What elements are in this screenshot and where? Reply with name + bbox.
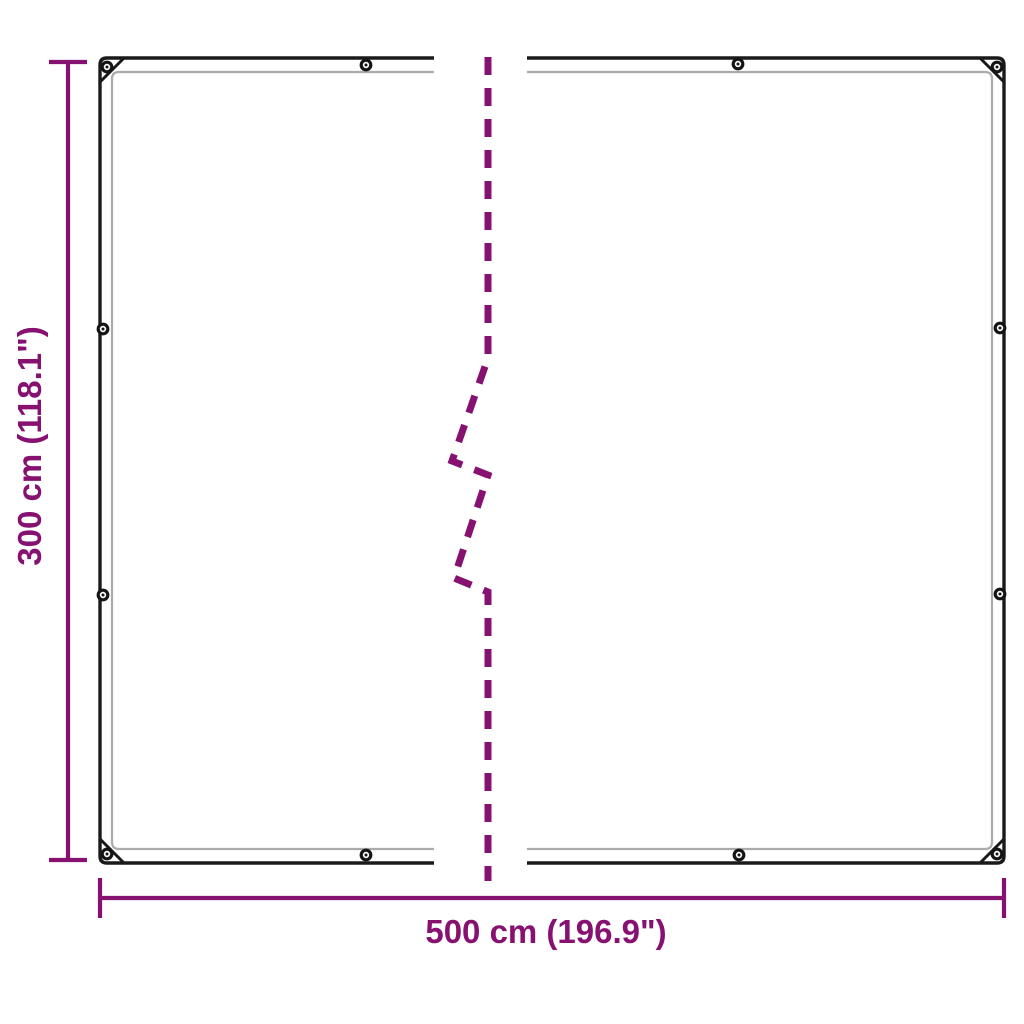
height-dimension-label: 300 cm (118.1") xyxy=(11,326,48,565)
grommet-ring-icon xyxy=(102,62,112,72)
tarpaulin-diagram-canvas: 300 cm (118.1") 500 cm (196.9") xyxy=(0,0,1024,1024)
tarp-left-panel xyxy=(100,58,434,863)
grommet-ring-icon xyxy=(98,590,108,600)
grommet-ring-icon xyxy=(995,589,1005,599)
product-dimension-diagram: 300 cm (118.1") 500 cm (196.9") xyxy=(0,0,1024,1024)
width-dimension-label: 500 cm (196.9") xyxy=(425,913,666,950)
grommet-ring-icon xyxy=(98,324,108,334)
grommet-ring-icon xyxy=(992,62,1002,72)
height-dimension-line xyxy=(49,62,87,860)
width-dimension-line xyxy=(100,878,1004,918)
grommet-ring-icon xyxy=(995,323,1005,333)
grommet-ring-icon xyxy=(733,59,743,69)
grommet-ring-icon xyxy=(992,849,1002,859)
grommet-ring-icon xyxy=(102,849,112,859)
grommet-ring-icon xyxy=(734,850,744,860)
dashed-break-line xyxy=(452,57,488,881)
tarp-right-panel xyxy=(527,58,1004,863)
grommet-ring-icon xyxy=(361,850,371,860)
grommet-ring-icon xyxy=(361,60,371,70)
